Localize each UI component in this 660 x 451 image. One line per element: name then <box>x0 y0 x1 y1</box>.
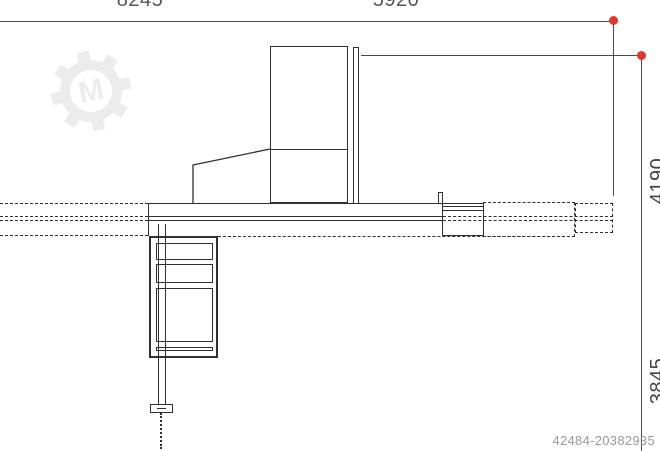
hidden-rail-upper-left <box>0 216 148 217</box>
measure-handle-dot-2[interactable] <box>637 51 646 60</box>
rear-bumper-box <box>442 203 484 236</box>
hidden-rail-lower-left <box>0 220 148 221</box>
deck-top-line <box>148 203 443 204</box>
bumper-plate-line-1 <box>442 206 484 207</box>
hidden-chassis-bottom-left <box>0 235 148 236</box>
cab-rear-panel <box>353 47 359 204</box>
hidden-deck-line-left <box>0 203 148 204</box>
chassis-rail-lower <box>148 220 442 221</box>
support-leg-post-right <box>165 224 166 405</box>
ground-reference-dotted-line <box>160 413 162 449</box>
technical-drawing-canvas: M 8245 5920 4190 3845 <box>0 0 660 451</box>
telescopic-extension-2 <box>575 203 613 233</box>
support-leg-post-left <box>158 224 159 405</box>
measure-handle-dot-1[interactable] <box>609 16 618 25</box>
support-foot-tick <box>157 408 166 409</box>
cab-body <box>270 46 348 203</box>
bumper-plate-line-2 <box>442 210 484 211</box>
chassis-rail-upper <box>148 216 442 217</box>
cab-divider-line <box>270 149 348 150</box>
telescopic-extension-1 <box>483 202 575 237</box>
listing-id-watermark: 42484-20382935 <box>552 433 655 448</box>
